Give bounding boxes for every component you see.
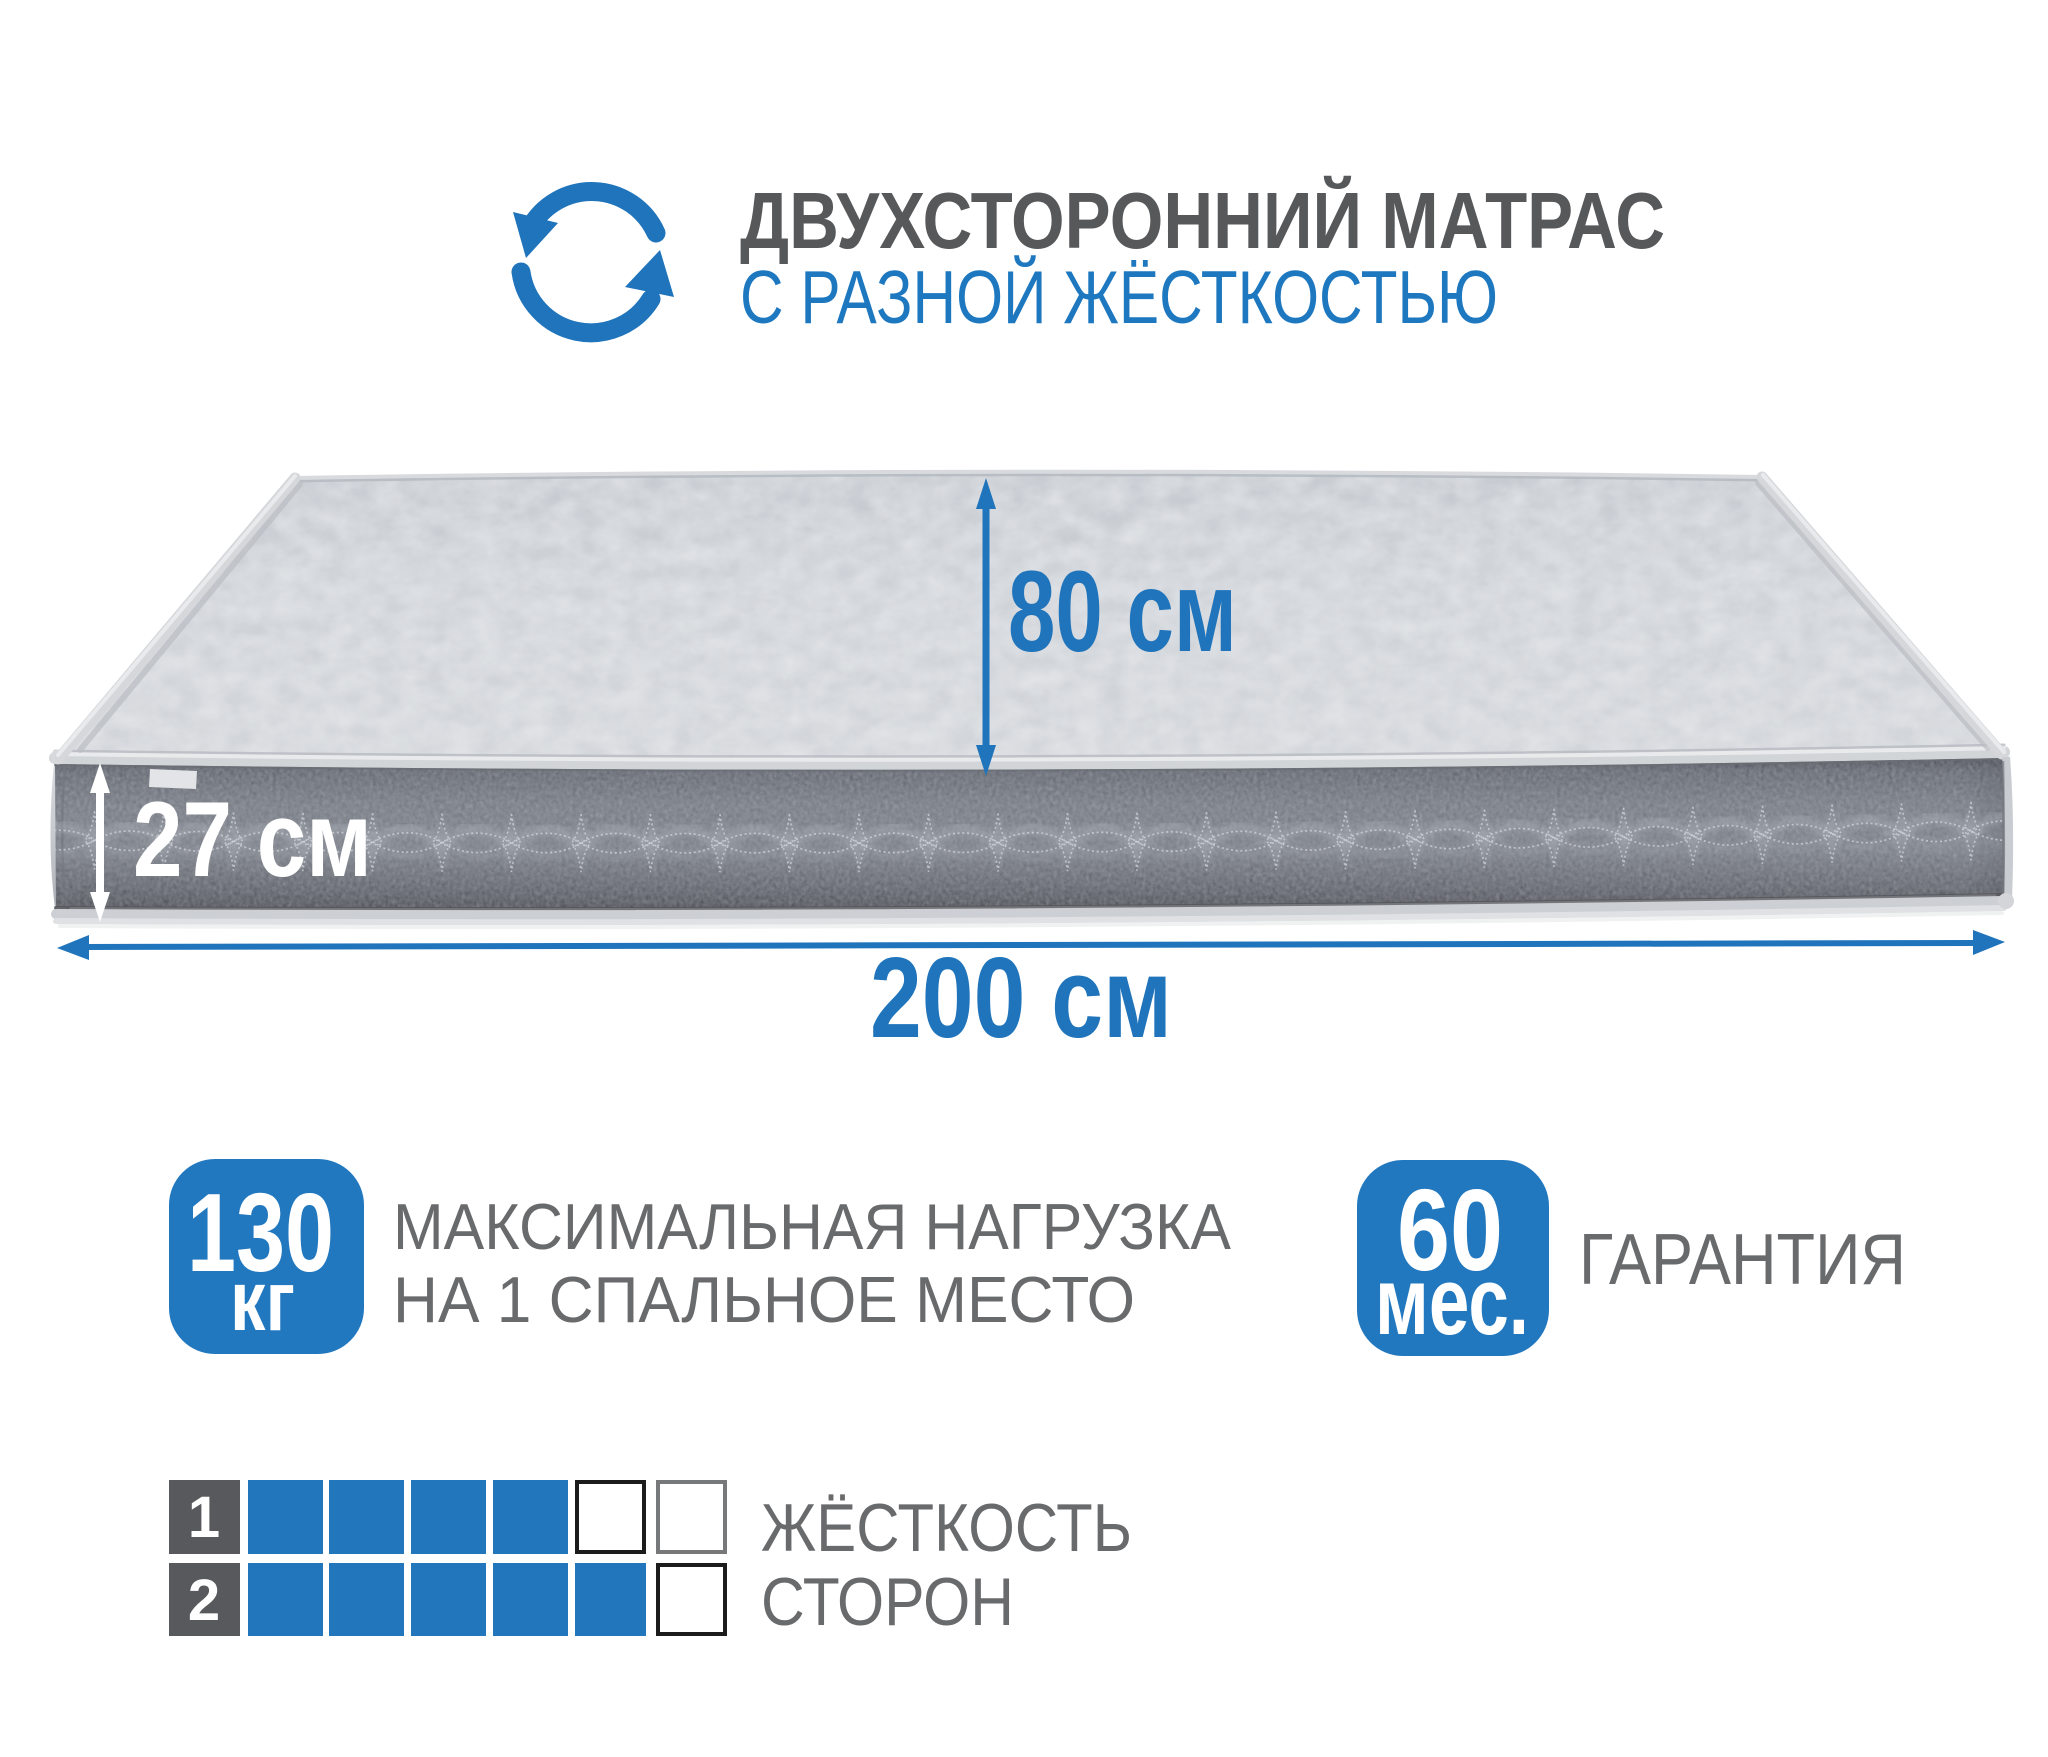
svg-text:27 см: 27 см [133, 779, 372, 899]
svg-text:СТОРОН: СТОРОН [761, 1564, 1014, 1640]
svg-text:ГАРАНТИЯ: ГАРАНТИЯ [1579, 1220, 1906, 1300]
svg-text:ЖЁСТКОСТЬ: ЖЁСТКОСТЬ [761, 1490, 1132, 1566]
svg-text:1: 1 [188, 1485, 220, 1550]
svg-text:ДВУХСТОРОННИЙ МАТРАС: ДВУХСТОРОННИЙ МАТРАС [740, 175, 1665, 265]
svg-text:С РАЗНОЙ ЖЁСТКОСТЬЮ: С РАЗНОЙ ЖЁСТКОСТЬЮ [740, 255, 1498, 339]
svg-text:80 см: 80 см [1008, 548, 1237, 676]
svg-text:мес.: мес. [1375, 1248, 1529, 1355]
svg-text:2: 2 [188, 1568, 220, 1633]
svg-text:кг: кг [230, 1254, 295, 1349]
svg-text:200 см: 200 см [870, 935, 1172, 1062]
svg-text:МАКСИМАЛЬНАЯ НАГРУЗКА: МАКСИМАЛЬНАЯ НАГРУЗКА [393, 1190, 1232, 1263]
svg-text:НА 1 СПАЛЬНОЕ МЕСТО: НА 1 СПАЛЬНОЕ МЕСТО [393, 1263, 1135, 1336]
